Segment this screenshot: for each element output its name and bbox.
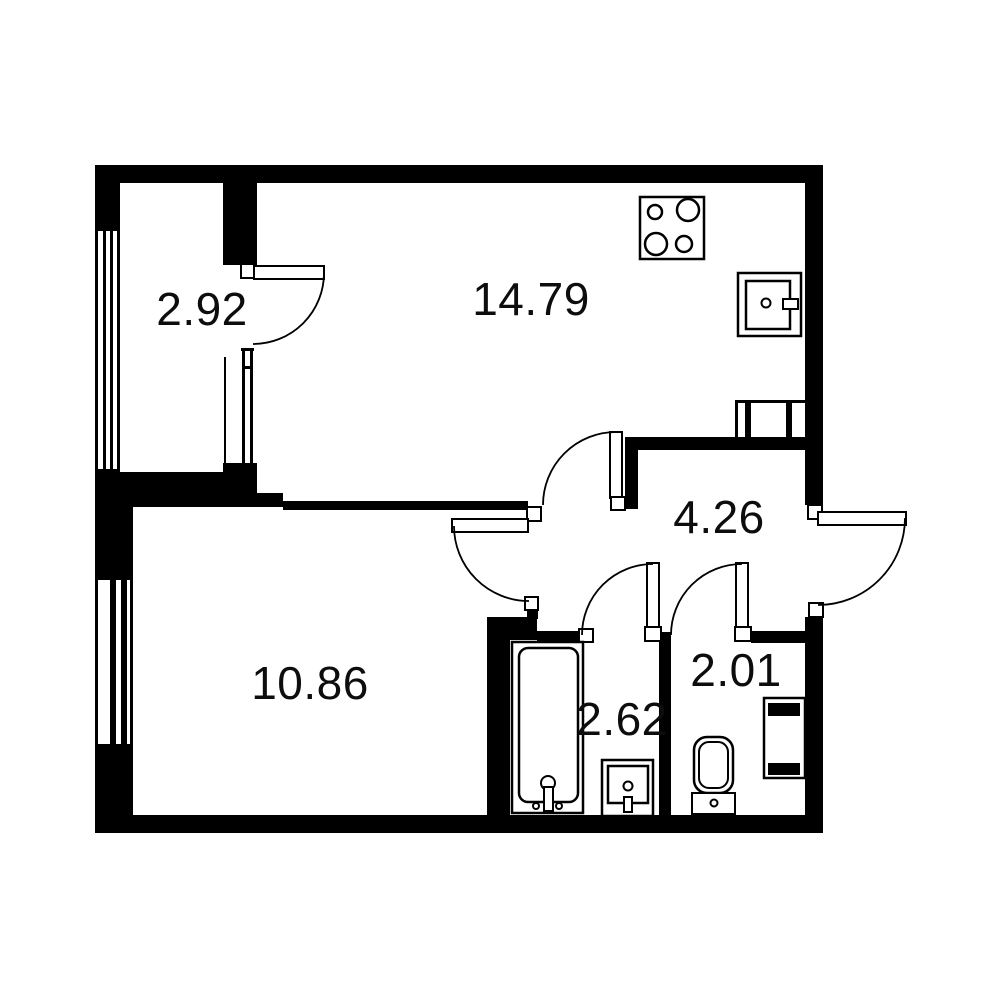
floor-plan: 2.92 14.79 4.26 10.86 2.62 2.01: [0, 0, 1000, 1000]
window-room-top-left: [95, 228, 120, 472]
door-stop-block: [579, 629, 593, 642]
room-area-label-kitchen-living: 14.79: [472, 276, 590, 322]
door-room-top-left: [241, 264, 324, 344]
door-leaf: [610, 432, 622, 498]
room-area-label-wc: 2.01: [690, 647, 782, 693]
door-swing-arc: [582, 564, 653, 635]
door-swing-arc: [818, 518, 905, 605]
door-leaf: [818, 512, 906, 525]
washbasin-icon: [602, 760, 653, 816]
window-bedroom: [95, 577, 133, 747]
door-hinge-block: [645, 627, 661, 641]
door-swing-arc: [454, 526, 529, 601]
door-bathroom: [579, 563, 661, 642]
door-leaf: [736, 563, 748, 630]
radiator-icon: [764, 698, 805, 778]
door-swing-arc: [543, 432, 616, 505]
bathtub-icon: [512, 642, 583, 813]
door-hinge-block: [735, 627, 751, 641]
door-bedroom: [452, 507, 541, 610]
room-area-label-bedroom: 10.86: [251, 660, 369, 706]
door-hinge-block: [527, 507, 541, 521]
door-hinge-block: [241, 264, 255, 278]
room-area-label-bathroom: 2.62: [576, 696, 668, 742]
door-stop-block: [525, 597, 538, 610]
room-area-label-hallway: 4.26: [673, 494, 765, 540]
door-leaf: [647, 563, 659, 629]
vent-shaft-icon: [735, 400, 805, 438]
entrance-door: [808, 505, 906, 617]
door-kitchen: [543, 432, 625, 510]
door-leaf: [254, 266, 324, 279]
door-wc: [671, 563, 751, 641]
partition-window: [224, 348, 254, 466]
door-hinge-block: [611, 497, 625, 510]
toilet-icon: [692, 737, 735, 814]
kitchen-sink-icon: [738, 273, 801, 336]
room-area-label-top-left: 2.92: [156, 286, 248, 332]
door-swing-arc: [253, 273, 324, 344]
floor-plan-drawing: [0, 0, 1000, 1000]
stove-icon: [640, 197, 704, 259]
door-swing-arc: [671, 564, 742, 635]
door-leaf: [452, 519, 528, 532]
